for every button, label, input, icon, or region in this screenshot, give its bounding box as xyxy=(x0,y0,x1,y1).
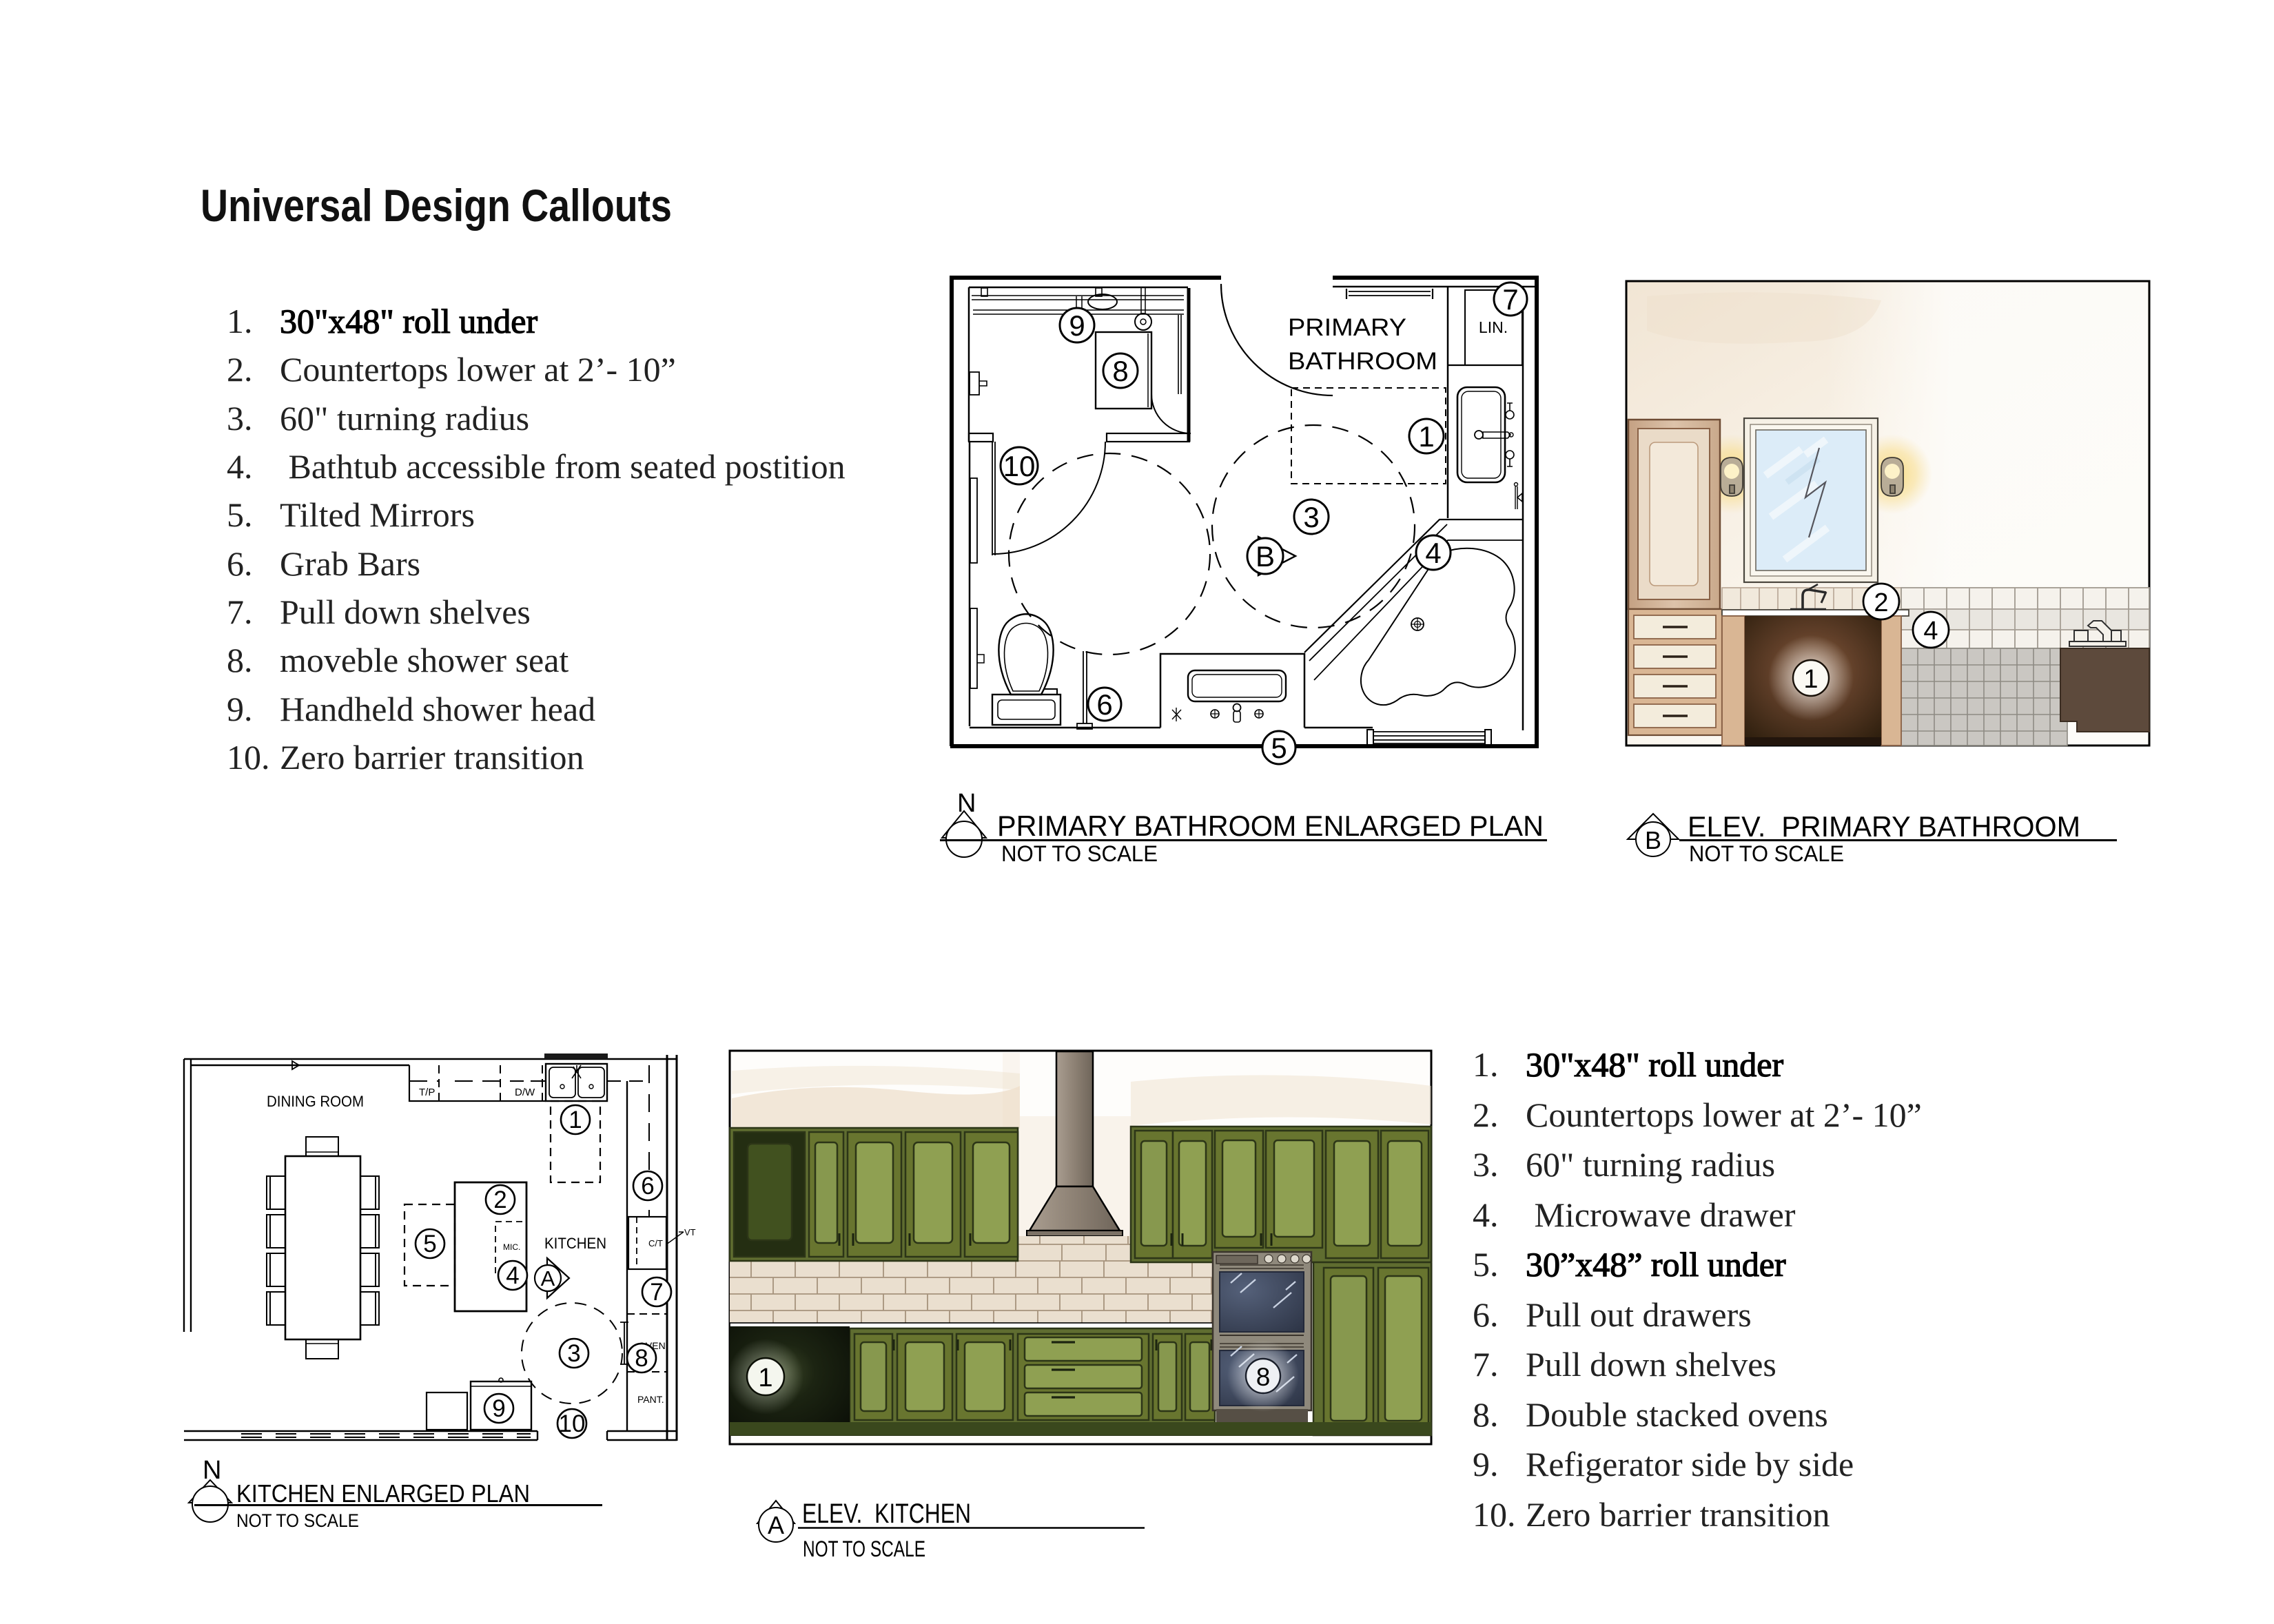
svg-text:PRIMARY: PRIMARY xyxy=(1288,314,1406,341)
svg-text:9: 9 xyxy=(1069,309,1085,342)
svg-text:10: 10 xyxy=(559,1410,586,1437)
svg-text:6: 6 xyxy=(641,1173,654,1200)
svg-text:3: 3 xyxy=(1303,501,1319,533)
svg-text:8: 8 xyxy=(1256,1363,1271,1391)
svg-text:4: 4 xyxy=(506,1262,519,1289)
svg-text:PRIMARY BATHROOM ENLARGED PLAN: PRIMARY BATHROOM ENLARGED PLAN xyxy=(997,810,1544,842)
svg-text:KITCHEN: KITCHEN xyxy=(544,1235,606,1252)
svg-text:6: 6 xyxy=(1096,688,1112,721)
svg-text:NOT TO SCALE: NOT TO SCALE xyxy=(1001,841,1158,866)
svg-text:ELEV. KITCHEN: ELEV. KITCHEN xyxy=(802,1499,971,1529)
svg-text:7: 7 xyxy=(650,1279,663,1306)
svg-text:BATHROOM: BATHROOM xyxy=(1288,348,1437,375)
svg-text:1: 1 xyxy=(1418,420,1434,453)
svg-text:LIN.: LIN. xyxy=(1479,318,1508,336)
svg-text:2: 2 xyxy=(493,1186,506,1213)
svg-text:8: 8 xyxy=(1112,355,1128,387)
svg-text:1: 1 xyxy=(1803,665,1818,694)
svg-text:C/T: C/T xyxy=(648,1238,663,1248)
svg-text:2: 2 xyxy=(1874,588,1888,617)
svg-text:A: A xyxy=(768,1511,784,1539)
svg-text:KITCHEN ENLARGED PLAN: KITCHEN ENLARGED PLAN xyxy=(236,1479,530,1508)
svg-text:8: 8 xyxy=(635,1345,648,1372)
svg-text:T/P: T/P xyxy=(419,1087,435,1098)
svg-text:N: N xyxy=(203,1456,221,1485)
svg-text:NOT TO SCALE: NOT TO SCALE xyxy=(1689,841,1844,866)
svg-text:1: 1 xyxy=(568,1107,582,1133)
svg-text:MIC.: MIC. xyxy=(503,1242,520,1252)
svg-text:9: 9 xyxy=(492,1395,505,1422)
svg-text:A: A xyxy=(541,1266,555,1291)
svg-text:10: 10 xyxy=(1003,450,1036,482)
svg-text:DINING ROOM: DINING ROOM xyxy=(267,1093,364,1110)
svg-text:5: 5 xyxy=(423,1231,436,1257)
svg-text:4: 4 xyxy=(1923,617,1938,646)
svg-text:7: 7 xyxy=(1502,283,1518,316)
svg-text:1: 1 xyxy=(758,1364,772,1392)
svg-text:ELEV. PRIMARY BATHROOM: ELEV. PRIMARY BATHROOM xyxy=(1688,810,2080,843)
svg-text:3: 3 xyxy=(567,1340,580,1367)
svg-text:NOT TO SCALE: NOT TO SCALE xyxy=(236,1510,359,1531)
svg-text:PANT.: PANT. xyxy=(637,1394,664,1405)
svg-text:5: 5 xyxy=(1271,732,1287,764)
svg-text:4: 4 xyxy=(1425,537,1441,569)
svg-text:NOT TO SCALE: NOT TO SCALE xyxy=(803,1536,925,1561)
svg-text:VT: VT xyxy=(684,1227,696,1237)
svg-text:B: B xyxy=(1256,540,1275,573)
svg-text:D/W: D/W xyxy=(515,1087,535,1098)
svg-text:B: B xyxy=(1645,826,1661,854)
